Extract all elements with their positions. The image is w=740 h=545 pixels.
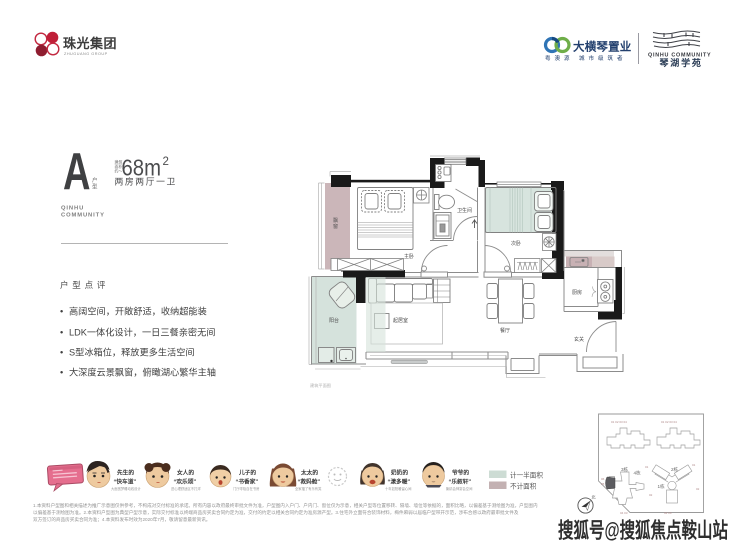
- svg-text:01 02 03 04: 01 02 03 04: [611, 420, 627, 424]
- svg-text:奶奶的: 奶奶的: [391, 469, 408, 477]
- svg-text:北: 北: [592, 494, 596, 500]
- svg-text:“快车道”: “快车道”: [114, 478, 137, 486]
- svg-text:爷爷的: 爷爷的: [452, 469, 469, 477]
- svg-text:窗: 窗: [333, 223, 338, 230]
- svg-text:大横琴置业: 大横琴置业: [573, 40, 632, 54]
- svg-text:“书香家”: “书香家”: [236, 478, 259, 486]
- svg-text:户: 户: [92, 176, 98, 184]
- svg-text:2栋: 2栋: [671, 466, 679, 473]
- svg-text:十年如阳暖留心间: 十年如阳暖留心间: [385, 486, 411, 491]
- svg-text:02: 02: [696, 487, 700, 491]
- svg-text:门厅呼吸自在书房: 门厅呼吸自在书房: [233, 486, 260, 491]
- svg-text:2: 2: [163, 156, 169, 168]
- svg-text:01: 01: [692, 463, 696, 467]
- svg-text:01 02 03 04: 01 02 03 04: [661, 420, 677, 424]
- svg-text:•: •: [60, 348, 63, 358]
- svg-text:LDK一体化设计，一日三餐亲密无间: LDK一体化设计，一日三餐亲密无间: [69, 327, 216, 338]
- svg-text:型: 型: [92, 183, 98, 191]
- svg-text:不计面积: 不计面积: [510, 482, 537, 491]
- svg-text:“救妈舱”: “救妈舱”: [298, 478, 321, 486]
- svg-text:3栋: 3栋: [621, 466, 629, 473]
- svg-text:建筑平面图: 建筑平面图: [310, 382, 331, 389]
- svg-text:太太的: 太太的: [300, 469, 318, 477]
- svg-text:ZHUGUANG GROUP: ZHUGUANG GROUP: [64, 52, 108, 56]
- svg-text:聚精会神宴会空间: 聚精会神宴会空间: [446, 486, 472, 491]
- svg-text:•: •: [60, 307, 63, 317]
- svg-text:次卧: 次卧: [511, 240, 521, 247]
- svg-text:珠光集团: 珠光集团: [63, 36, 117, 51]
- svg-text:1.本资料户型图和相关描述为推广示意图仅供参考，不构成对交付: 1.本资料户型图和相关描述为推广示意图仅供参考，不构成对交付标准的承诺。所有内容…: [33, 502, 538, 509]
- svg-text:厨房: 厨房: [572, 289, 582, 296]
- svg-text:先生的: 先生的: [117, 469, 134, 477]
- svg-text:搜狐号@搜狐焦点鞍山站: 搜狐号@搜狐焦点鞍山站: [558, 519, 728, 543]
- svg-text:S型冰箱位，释放更多生活空间: S型冰箱位，释放更多生活空间: [69, 347, 195, 358]
- svg-text:COMMUNITY: COMMUNITY: [61, 213, 105, 219]
- svg-text:06: 06: [601, 477, 605, 481]
- svg-text:高阔空间，开敞舒适，收纳超能装: 高阔空间，开敞舒适，收纳超能装: [69, 306, 207, 317]
- svg-text:双方签订的商品房买卖合同为准；4.本资料发布时效为2020年: 双方签订的商品房买卖合同为准；4.本资料发布时效为2020年7月，敬请留意最新资…: [33, 516, 210, 523]
- svg-text:“欢乐颂”: “欢乐颂”: [174, 478, 197, 486]
- svg-text:卫生间: 卫生间: [457, 207, 472, 214]
- svg-text:以偏差基于测绘图为准。2.本资料户型图为典型户型示意，实际交: 以偏差基于测绘图为准。2.本资料户型图为典型户型示意，实际交付标准以终端商品房买…: [33, 509, 519, 516]
- svg-text:“乐叙轩”: “乐叙轩”: [449, 478, 472, 486]
- svg-text:05: 05: [601, 482, 605, 486]
- svg-text:01: 01: [645, 465, 649, 469]
- svg-text:04 03: 04 03: [620, 511, 628, 515]
- svg-text:全家福了有乐有笑: 全家福了有乐有笑: [295, 486, 322, 491]
- svg-text:阳台: 阳台: [329, 317, 339, 324]
- svg-text:A: A: [63, 142, 91, 200]
- svg-text:1栋: 1栋: [658, 483, 666, 490]
- svg-text:主卧: 主卧: [404, 253, 414, 260]
- svg-text:4栋: 4栋: [634, 470, 642, 477]
- svg-text:起居室: 起居室: [393, 317, 408, 324]
- svg-text:04 03: 04 03: [664, 511, 672, 515]
- svg-text:琴湖学苑: 琴湖学苑: [659, 57, 703, 68]
- svg-text:02: 02: [649, 493, 653, 497]
- svg-text:户型点评: 户型点评: [60, 280, 109, 290]
- svg-text:粤澳源 城市级筑者: 粤澳源 城市级筑者: [545, 54, 627, 62]
- svg-text:计一半面积: 计一半面积: [510, 471, 543, 480]
- svg-text:进心理舒适区不打烊: 进心理舒适区不打烊: [171, 486, 201, 491]
- svg-text:餐厅: 餐厅: [500, 327, 510, 334]
- svg-text:儿子的: 儿子的: [238, 469, 256, 477]
- svg-text:QINHU: QINHU: [61, 206, 84, 212]
- svg-text:大深度云景飘窗，俯瞰湖心繁华主轴: 大深度云景飘窗，俯瞰湖心繁华主轴: [69, 367, 216, 378]
- svg-text:玄关: 玄关: [574, 336, 584, 343]
- svg-text:•: •: [60, 328, 63, 338]
- svg-text:•: •: [60, 368, 63, 378]
- svg-text:“漾多暖”: “漾多暖”: [388, 478, 411, 486]
- svg-text:女人的: 女人的: [177, 469, 194, 477]
- svg-text:两房两厅一卫: 两房两厅一卫: [115, 176, 177, 187]
- svg-text:大面宽梦睡动线设计: 大面宽梦睡动线设计: [111, 486, 141, 491]
